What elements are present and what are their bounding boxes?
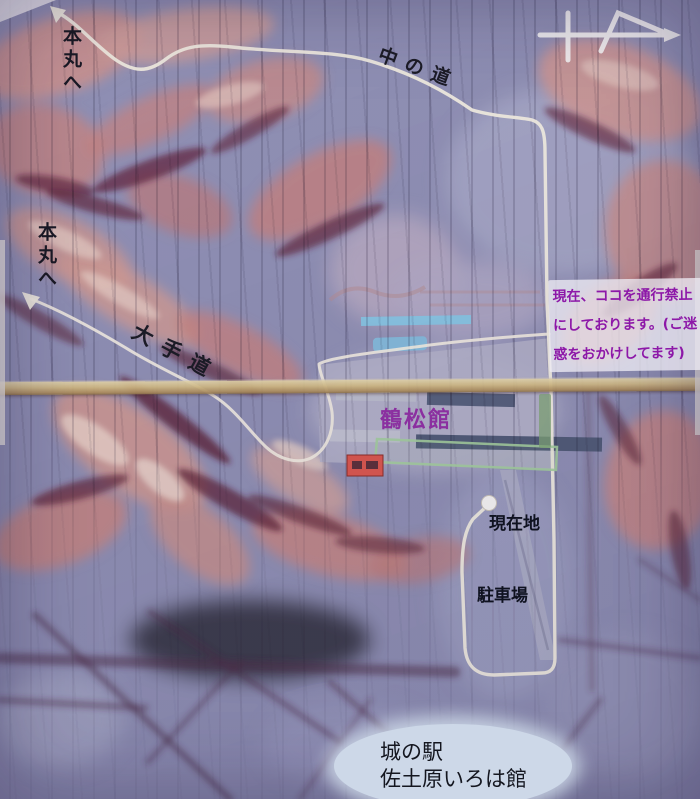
castle-park-relief-map: 本丸へ 本丸へ 中の道 大手道 鶴松館 現在、ココを通行禁止 にしております。(… [0,0,700,799]
station-name-line1: 城の駅 [380,739,572,766]
closure-notice: 現在、ココを通行禁止 にしております。(ご迷 惑をおかけしてます) [548,278,700,372]
kakushokan-boundary [375,439,557,470]
station-callout-ellipse: 城の駅 佐土原いろは館 [334,724,572,799]
red-marker-text-smudge [352,461,362,469]
station-name-line2: 佐土原いろは館 [380,766,572,793]
closure-notice-line: にしております。(ご迷 [553,310,700,341]
closure-notice-line: 現在、ココを通行禁止 [552,281,700,312]
label-kakushokan: 鶴松館 [380,402,452,434]
closure-notice-line: 惑をおかけしてます) [553,339,700,370]
red-marker-text-smudge [366,461,378,469]
label-honmaru-left: 本丸へ [33,222,60,291]
label-parking: 駐車場 [477,581,528,606]
hedge-strip [539,394,551,448]
compass-north-icon [540,13,681,60]
label-honmaru-top: 本丸へ [58,26,85,95]
red-marker [347,455,383,476]
map-markers [0,0,700,799]
label-current-location: 現在地 [489,509,540,534]
sign-frame-edge-left [0,240,5,445]
